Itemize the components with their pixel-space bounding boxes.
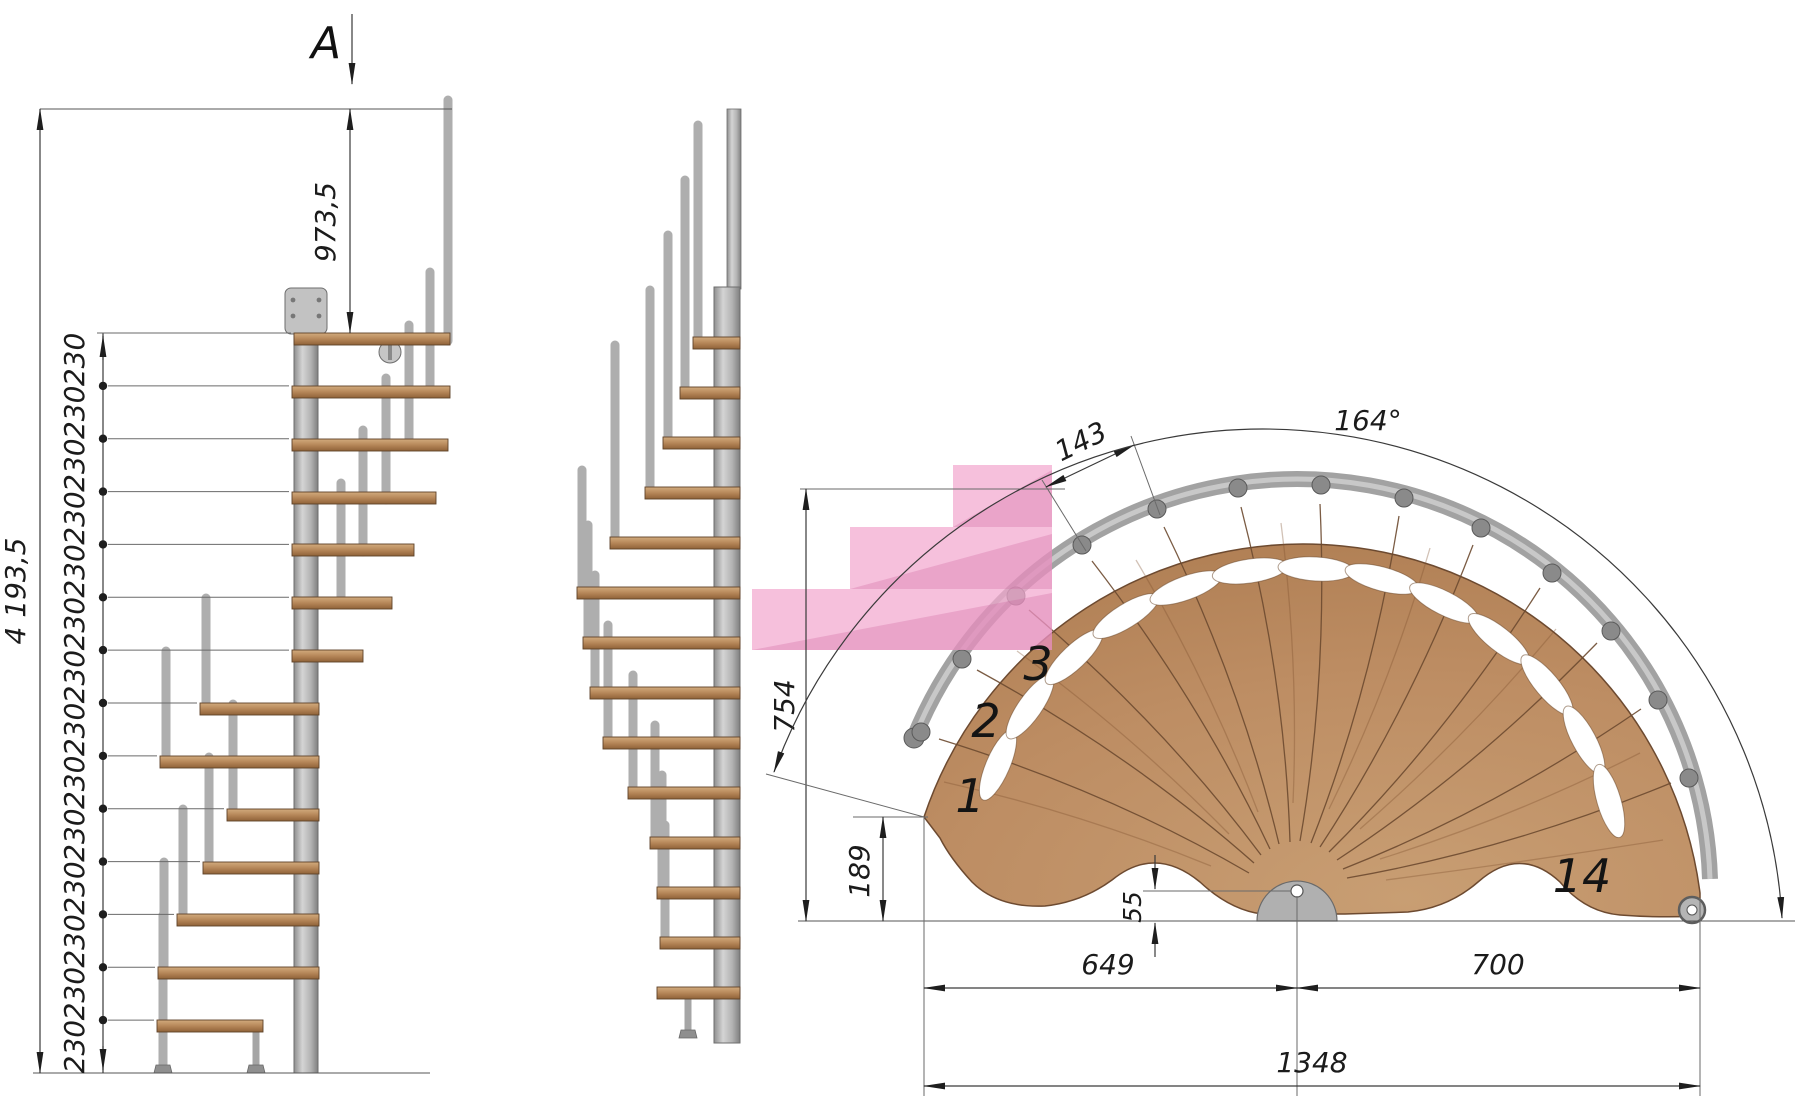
step-number-3: 3 — [1023, 637, 1052, 691]
handrail-balusters-left — [154, 598, 265, 1073]
dim-label-riser-13: 230 — [58, 967, 91, 1020]
dim-label-riser-4: 230 — [58, 491, 91, 544]
section-letter: A — [308, 18, 341, 69]
staircase-technical-drawing: A 4 193,5 973,5 — [0, 0, 1800, 1113]
dim-label-riser-12: 230 — [58, 914, 91, 967]
dim-label-span-left: 649 — [1081, 948, 1134, 981]
baluster-foot — [679, 1030, 697, 1038]
dim-label-depth: 754 — [768, 679, 801, 732]
section-marker: A — [308, 14, 352, 84]
elevation-view-front — [33, 100, 450, 1073]
column-side — [714, 287, 740, 1043]
dim-span-649-700: 649 700 — [924, 948, 1700, 988]
dim-label-riser-2: 230 — [58, 386, 91, 439]
dim-label-riser-1: 230 — [58, 333, 91, 386]
dim-label-riser-6: 230 — [58, 597, 91, 650]
staircase-technical-drawing-page: A 4 193,5 973,5 — [0, 0, 1800, 1113]
top-bracket — [285, 288, 327, 334]
dim-label-span-right: 700 — [1471, 948, 1524, 981]
pink-highlight-overlay — [752, 465, 1052, 650]
handrail-eye-ring — [1679, 897, 1705, 923]
step-number-1: 1 — [955, 769, 984, 823]
dim-corner-189: 189 — [843, 817, 928, 921]
column-cap-tube — [727, 109, 741, 289]
column-front — [294, 296, 318, 1073]
step-number-2: 2 — [971, 694, 1000, 748]
dim-label-riser-10: 230 — [58, 808, 91, 861]
baluster-foot — [154, 1065, 172, 1073]
dim-label-span-total: 1348 — [1276, 1046, 1347, 1079]
hub-center-hole — [1291, 885, 1303, 897]
dim-label-riser-8: 230 — [58, 703, 91, 756]
dim-label-corner: 189 — [843, 844, 876, 897]
dim-label-riser-5: 230 — [58, 544, 91, 597]
baluster-foot — [247, 1065, 265, 1073]
dim-label-fan-angle: 164° — [1334, 404, 1401, 437]
dim-label-riser-7: 230 — [58, 650, 91, 703]
dim-total-height: 4 193,5 — [0, 109, 40, 1073]
dim-label-riser-14: 230 — [58, 1020, 91, 1073]
dim-label-top-height: 973,5 — [309, 182, 342, 262]
dim-label-center-offset: 55 — [1118, 891, 1147, 923]
dim-label-riser-11: 230 — [58, 861, 91, 914]
dim-label-riser-9: 230 — [58, 756, 91, 809]
step-number-14: 14 — [1553, 849, 1612, 903]
handrail-balusters-side — [582, 125, 698, 1038]
dim-label-total-height: 4 193,5 — [0, 538, 32, 645]
dim-span-total: 1348 — [924, 1046, 1700, 1086]
elevation-view-side — [577, 109, 741, 1043]
dim-label-riser-3: 230 — [58, 438, 91, 491]
